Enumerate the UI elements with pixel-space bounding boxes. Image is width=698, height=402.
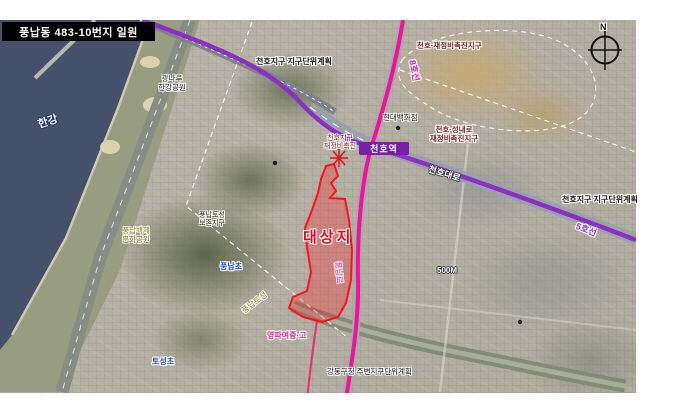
label-toseong-zone-line1: 풍납토성 <box>192 212 232 220</box>
label-baekje-park-line2: 문화공원 <box>116 236 156 245</box>
label-toseong-zone-line2: 보존지구 <box>192 220 232 228</box>
cheonho-station-badge: 천호역 <box>359 142 409 155</box>
label-target-site: 대상지 <box>303 229 353 247</box>
label-cheonho-seongnae-line2: 재정비촉진지구 <box>424 135 484 144</box>
label-cheonho-district-plan-right: 천호지구 지구단위계획 <box>562 195 638 205</box>
poi-dot <box>273 161 277 165</box>
starburst-marker <box>330 149 348 167</box>
compass-north-label: N <box>600 22 607 33</box>
map-vector-overlay <box>0 20 636 393</box>
label-pungnap-elementary: 풍납초 <box>220 262 242 272</box>
compass-icon <box>588 30 622 70</box>
label-yeongpa-school: 영파여중·고 <box>267 331 306 341</box>
label-gwangnaru-park: 광나루 한강공원 <box>146 75 198 92</box>
label-hyundai-dept-store: 현대백화점 <box>383 113 418 122</box>
label-baekje-culture-park: 풍납백제 문화공원 <box>116 227 156 244</box>
label-cheonho-renewal-line1: 천호지구 <box>318 135 362 143</box>
pungnap-ro-road <box>307 320 317 393</box>
map-screenshot: 풍납동 483-10번지 일원 한강 광나루 한강공원 천호지구 지구단위계획 … <box>0 0 698 402</box>
label-toseong-preservation-zone: 풍납토성 보존지구 <box>192 212 232 228</box>
label-gwangnaru-line2: 한강공원 <box>146 84 198 93</box>
map-title-text: 풍납동 483-10번지 일원 <box>19 24 138 40</box>
label-toseong-elementary: 토성초 <box>152 357 174 367</box>
label-cheonho-renewal-zone: 천호지구 재정비촉진 <box>318 135 362 151</box>
map-title: 풍납동 483-10번지 일원 <box>2 22 155 41</box>
park-sand-patch <box>100 140 120 154</box>
label-cheonho-renewal-line2: 재정비촉진 <box>318 143 362 151</box>
label-scale-500m: 500M <box>437 266 457 276</box>
poi-dot <box>518 320 522 324</box>
label-cheonho-promotion-zone: 천호·재정비촉진지구 <box>417 41 482 50</box>
minor-road <box>380 300 636 330</box>
park-sand-patch <box>140 56 160 68</box>
label-gangdong-district-plan: 강동구청 주변지구단위계획 <box>327 367 412 376</box>
label-cheonho-seongnae-zone: 천호·성내로 재정비촉진지구 <box>424 126 484 143</box>
label-cheonho-district-plan-top: 천호지구 지구단위계획 <box>256 57 332 67</box>
poi-dot <box>396 126 400 130</box>
